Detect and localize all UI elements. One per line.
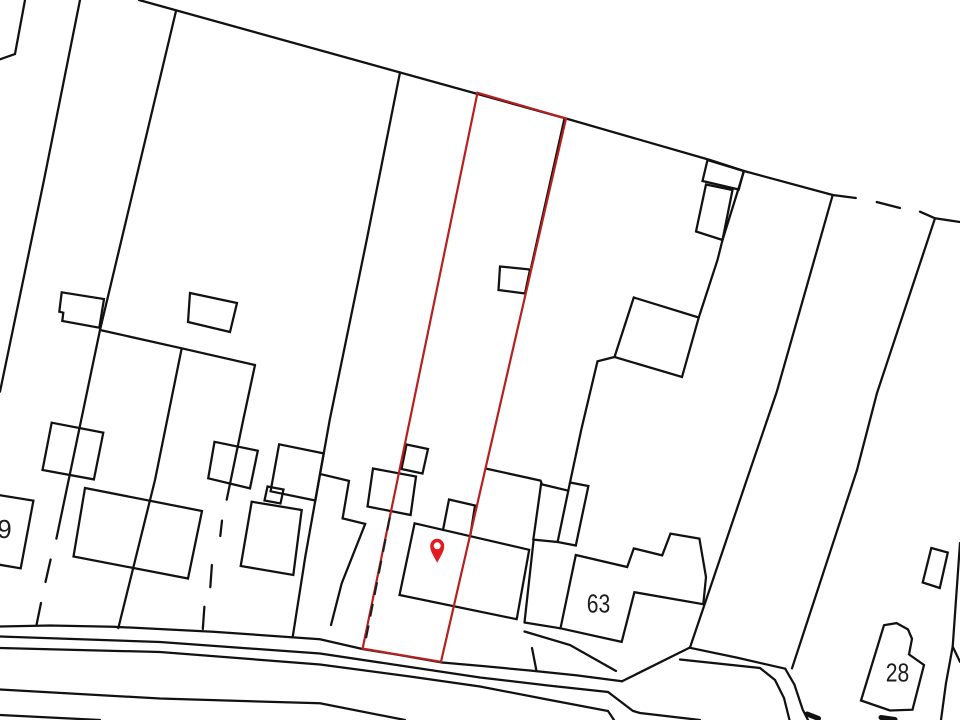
svg-text:63: 63 — [587, 589, 611, 619]
svg-text:28: 28 — [886, 658, 910, 688]
svg-text:9: 9 — [0, 514, 12, 544]
